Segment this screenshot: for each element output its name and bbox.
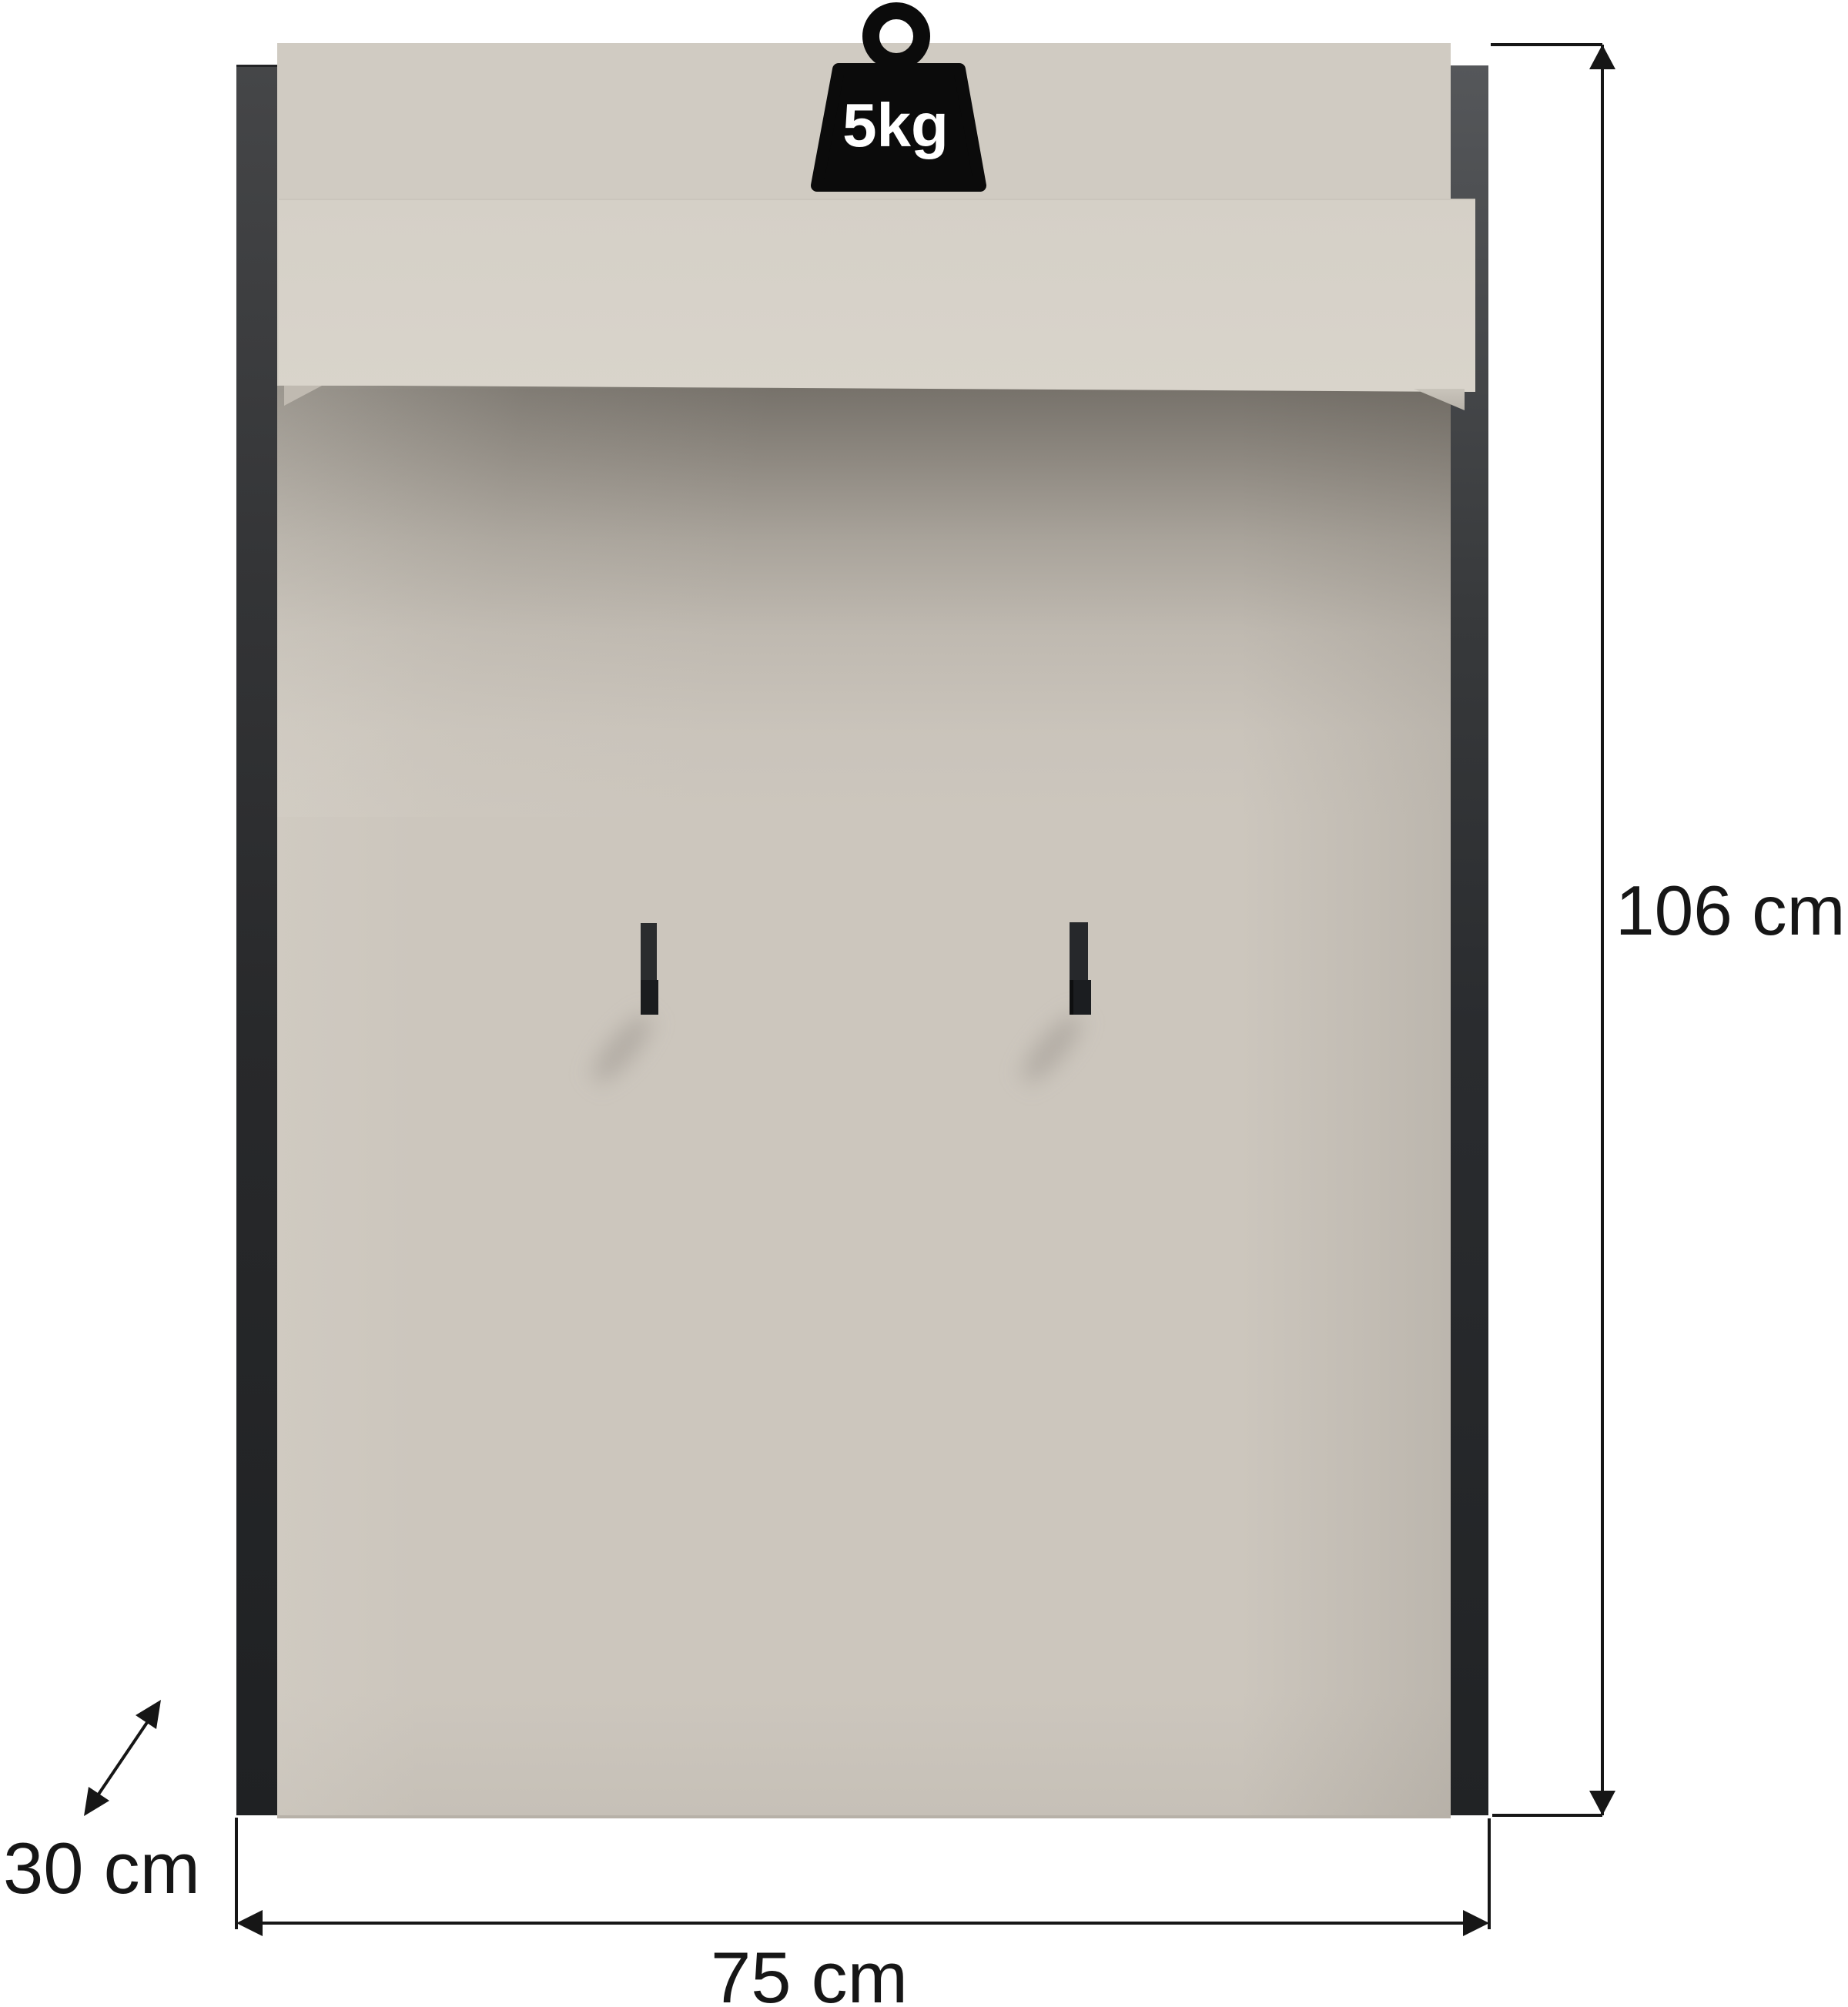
svg-text:30 cm: 30 cm: [3, 1828, 200, 1908]
svg-text:106 cm: 106 cm: [1615, 872, 1845, 950]
svg-text:75 cm: 75 cm: [711, 1937, 908, 2007]
